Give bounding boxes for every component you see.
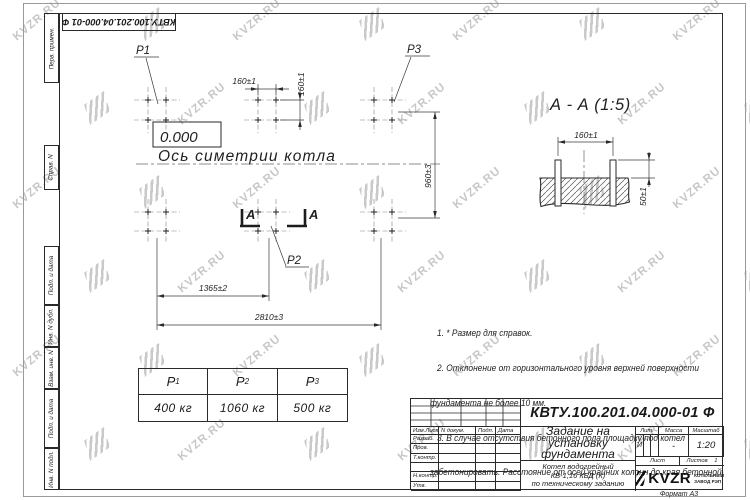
kvzr-logo-text: KVZR: [648, 470, 691, 487]
company-logo-block: KVZR КОТЕЛЬНЫЙ ЗАВОД РЭП: [636, 466, 724, 491]
bolt-cross: [273, 209, 279, 215]
scale-header: Масштаб: [689, 427, 724, 435]
mass-header: Масса: [659, 427, 689, 435]
change-record-grid: [411, 399, 521, 427]
section-letter-left: А: [245, 207, 255, 222]
section-detail: А - А (1:5) 160±1 50±1: [540, 96, 655, 214]
mass-value: -: [659, 435, 689, 457]
format-label: Формат А3: [635, 491, 723, 498]
signature-row-cell: [496, 444, 521, 453]
load-table-value-p1: 400 кг: [139, 395, 208, 421]
elevation-mark: 0.000: [153, 122, 221, 147]
bolt-cross: [371, 228, 377, 234]
anchor-bolt-left: [555, 160, 561, 206]
col-header-podp: Подп.: [476, 427, 496, 435]
bolt-cross: [163, 97, 169, 103]
signature-row-label: Разраб.: [411, 435, 439, 444]
p-index: 1: [175, 377, 179, 386]
bolt-cross: [255, 209, 261, 215]
sheets-label: Листов: [687, 458, 708, 464]
signature-row-cell: [439, 435, 476, 444]
section-cut-marks: А А: [240, 207, 318, 226]
load-table-header-p2: P2: [208, 369, 277, 395]
p1-label: P1: [136, 45, 150, 57]
kvzr-logo-subtext: КОТЕЛЬНЫЙ ЗАВОД РЭП: [694, 473, 724, 484]
signature-row-label: Пров.: [411, 444, 439, 453]
load-table: P1 P2 P3 400 кг 1060 кг 500 кг: [138, 368, 348, 422]
signature-row-cell: [496, 472, 521, 481]
bolt-cross: [389, 97, 395, 103]
dimension-bolt-spacing-vertical: 160±1: [280, 72, 306, 130]
doc-number: КВТУ.100.201.04.000-01 Ф: [521, 399, 724, 427]
scale-value: 1:20: [689, 435, 724, 457]
sheets-cell: Листов 1: [680, 457, 724, 466]
anchor-bolt-right: [610, 160, 616, 206]
load-table-header-p3: P3: [278, 369, 347, 395]
bolt-cross: [255, 117, 261, 123]
bolt-cross: [389, 117, 395, 123]
signature-row-cell: [476, 435, 496, 444]
p3-label: P3: [407, 44, 422, 56]
load-point-p1: P1: [134, 45, 159, 104]
col-header-data: Дата: [496, 427, 521, 435]
bolt-cross: [145, 97, 151, 103]
col-header-izm-list: Изм.Лист: [411, 427, 439, 435]
change-grid-lines: [411, 399, 520, 427]
signature-row-label: Н.контр.: [411, 472, 439, 481]
dim-text: 50±1: [638, 187, 648, 206]
bolt-cross: [163, 209, 169, 215]
section-letter-right: А: [308, 207, 318, 222]
sheet-cell: Лист: [636, 457, 680, 466]
dim-text: 2810±3: [254, 312, 284, 322]
dimension-bolt-spacing-horizontal: 160±1: [232, 76, 289, 95]
bolt-cross: [163, 228, 169, 234]
signature-row-cell: [496, 435, 521, 444]
dim-text: 160±1: [232, 76, 256, 86]
lit-empty-cell: [644, 435, 651, 457]
symmetry-axis-label: Ось симетрии котла: [158, 148, 336, 165]
load-point-p3: P3: [394, 44, 430, 102]
p-symbol: P: [167, 374, 176, 389]
signature-row-cell: [476, 454, 496, 463]
sheets-value: 1: [714, 458, 717, 464]
signature-row-cell: [439, 472, 476, 481]
signature-row-label: [411, 463, 439, 472]
p-symbol: P: [236, 374, 245, 389]
p2-label: P2: [287, 255, 302, 267]
load-table-header-p1: P1: [139, 369, 208, 395]
signature-row-cell: [476, 482, 496, 491]
signature-row-cell: [439, 444, 476, 453]
elevation-value: 0.000: [160, 129, 198, 146]
load-point-p2: P2: [271, 226, 309, 267]
signature-row-label: Т.контр.: [411, 454, 439, 463]
anchor-bolt-groups: [134, 87, 406, 244]
signature-row-label: Утв.: [411, 482, 439, 491]
bolt-cross: [273, 117, 279, 123]
product-name: Котел водогрейный КВ-1,16 КБД (К) по тех…: [521, 461, 636, 491]
bolt-cross: [371, 97, 377, 103]
bolt-cross: [145, 117, 151, 123]
product-line: по техническому заданию: [532, 480, 625, 489]
dimension-mid-1365: 1365±2: [157, 238, 269, 330]
dimension-height-960: 960±3: [398, 112, 440, 218]
signature-row-cell: [439, 454, 476, 463]
note-line: 1. * Размер для справок.: [430, 328, 722, 340]
p-symbol: P: [306, 374, 315, 389]
bolt-cross: [371, 209, 377, 215]
dim-text: 160±1: [574, 130, 598, 140]
bolt-cross: [371, 117, 377, 123]
lit-value-cell: И: [636, 435, 644, 457]
title-line: фундамента: [541, 449, 615, 461]
drawing-title: Задание на установку фундамента: [521, 427, 636, 461]
title-block: КВТУ.100.201.04.000-01 Ф Изм.Лист N доку…: [410, 398, 723, 490]
kvzr-logo-icon: [636, 471, 647, 486]
lit-empty-cell: [651, 435, 659, 457]
bolt-cross: [255, 228, 261, 234]
dim-text: 160±1: [296, 72, 306, 96]
signature-row-cell: [439, 482, 476, 491]
bolt-cross: [389, 209, 395, 215]
signature-row-cell: [496, 463, 521, 472]
signature-row-cell: [476, 472, 496, 481]
bolt-cross: [273, 97, 279, 103]
load-table-value-p2: 1060 кг: [208, 395, 277, 421]
bolt-cross: [255, 97, 261, 103]
bolt-cross: [145, 209, 151, 215]
logo-sub-line: ЗАВОД РЭП: [694, 479, 724, 484]
drawing-sheet: KVZR.RUKVZR.RUKVZR.RUKVZR.RUKVZR.RUKVZR.…: [0, 0, 750, 500]
dim-text: 1365±2: [199, 283, 228, 293]
load-table-value-p3: 500 кг: [278, 395, 347, 421]
lit-header: Лит.: [636, 427, 659, 435]
col-header-n-dokum: N докум.: [439, 427, 476, 435]
signature-row-cell: [439, 463, 476, 472]
p-index: 3: [314, 377, 318, 386]
signature-row-cell: [496, 454, 521, 463]
signature-row-cell: [496, 482, 521, 491]
signature-row-cell: [476, 463, 496, 472]
bolt-cross: [145, 228, 151, 234]
section-title: А - А (1:5): [549, 96, 631, 114]
p-index: 2: [245, 377, 249, 386]
note-line: 2. Отклонение от горизонтального уровня …: [430, 363, 722, 375]
dimension-section-spacing: 160±1: [558, 130, 613, 156]
bolt-cross: [389, 228, 395, 234]
dim-text: 960±3: [423, 164, 433, 188]
signature-row-cell: [476, 444, 496, 453]
